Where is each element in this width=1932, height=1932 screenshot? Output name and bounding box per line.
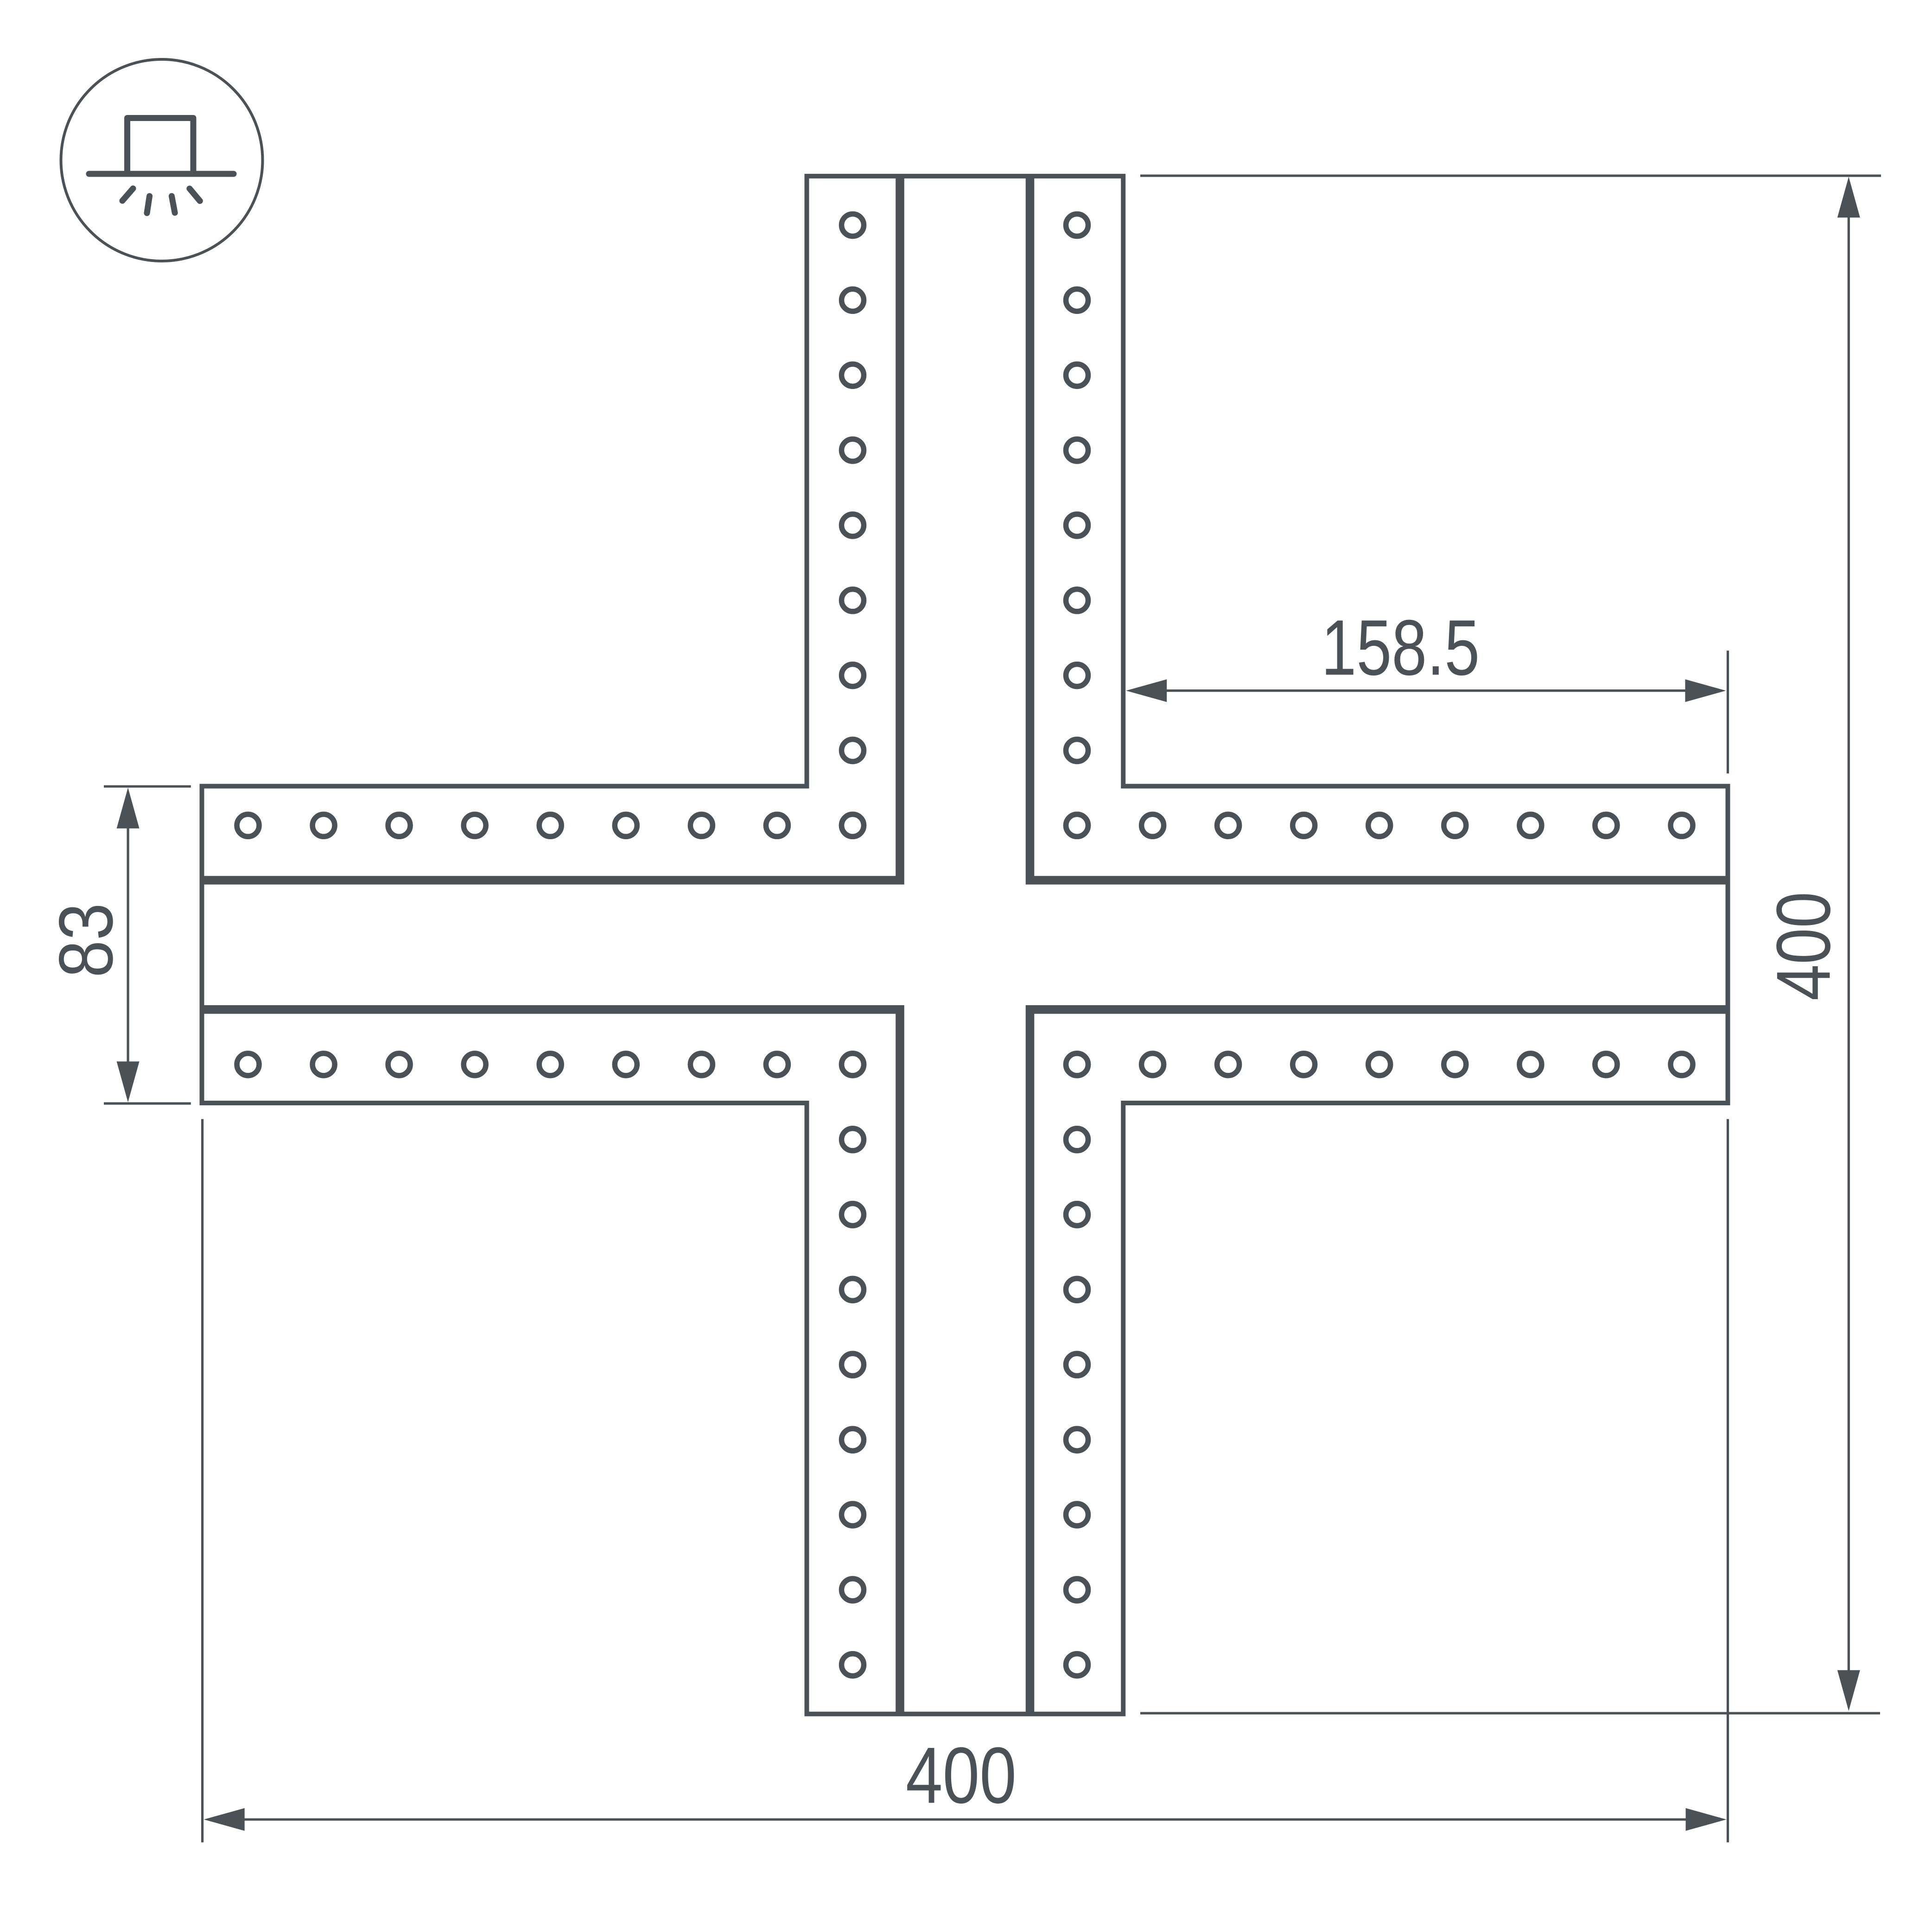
svg-text:158.5: 158.5 <box>1321 604 1480 692</box>
svg-text:83: 83 <box>43 903 128 978</box>
svg-text:400: 400 <box>906 1731 1017 1820</box>
svg-text:400: 400 <box>1760 892 1846 1001</box>
